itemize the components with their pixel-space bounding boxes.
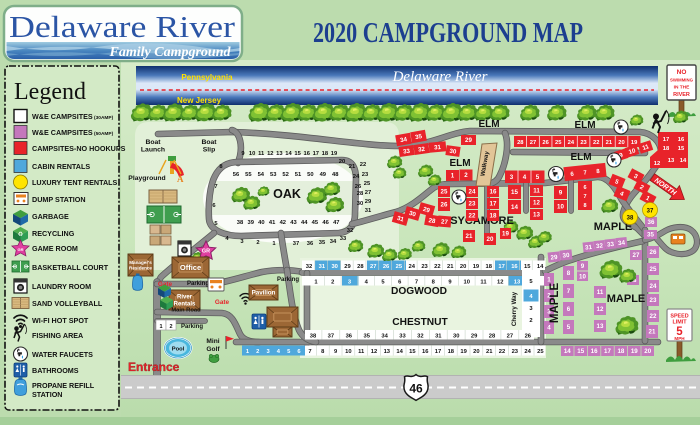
svg-text:17: 17 <box>604 348 611 355</box>
svg-text:CHESTNUT: CHESTNUT <box>392 317 448 328</box>
svg-text:SWIMMING: SWIMMING <box>670 78 694 83</box>
svg-text:New Jersey: New Jersey <box>177 96 222 105</box>
svg-text:22: 22 <box>499 349 505 355</box>
svg-text:26: 26 <box>441 202 448 209</box>
svg-text:56: 56 <box>233 172 240 178</box>
svg-text:CAMPSITES-NO HOOKUPS: CAMPSITES-NO HOOKUPS <box>32 144 126 153</box>
svg-text:17: 17 <box>498 264 504 270</box>
svg-text:21: 21 <box>649 329 656 336</box>
svg-text:45: 45 <box>312 220 319 226</box>
svg-text:SAND VOLLEYBALL: SAND VOLLEYBALL <box>32 299 103 308</box>
svg-text:31: 31 <box>319 264 326 270</box>
svg-text:35: 35 <box>647 232 654 239</box>
svg-text:33: 33 <box>340 236 347 242</box>
svg-text:4: 4 <box>523 174 527 181</box>
svg-text:19: 19 <box>331 151 338 157</box>
svg-text:STATION: STATION <box>32 390 62 399</box>
svg-text:25: 25 <box>441 189 448 196</box>
svg-text:29: 29 <box>471 334 478 340</box>
svg-text:27: 27 <box>370 264 376 270</box>
svg-text:18: 18 <box>490 213 497 220</box>
svg-text:24: 24 <box>469 189 476 196</box>
svg-text:33: 33 <box>607 241 615 249</box>
svg-text:14: 14 <box>396 349 403 355</box>
svg-text:34: 34 <box>618 239 626 247</box>
svg-text:30: 30 <box>331 264 337 270</box>
svg-text:Gate: Gate <box>215 299 230 306</box>
svg-text:15: 15 <box>678 146 685 152</box>
svg-text:41: 41 <box>269 220 276 226</box>
svg-text:27: 27 <box>441 218 449 226</box>
svg-text:12: 12 <box>533 200 540 207</box>
svg-text:BASKETBALL COURT: BASKETBALL COURT <box>32 263 109 272</box>
svg-text:46: 46 <box>409 382 423 396</box>
svg-text:32: 32 <box>347 228 353 234</box>
svg-text:18: 18 <box>322 151 329 157</box>
svg-text:NO: NO <box>677 69 687 76</box>
svg-text:52: 52 <box>282 172 288 178</box>
svg-text:22: 22 <box>650 313 657 320</box>
svg-text:8: 8 <box>583 203 586 209</box>
svg-text:16: 16 <box>490 189 497 196</box>
svg-text:20: 20 <box>487 236 494 243</box>
svg-text:Office: Office <box>180 263 201 272</box>
svg-text:LAUNDRY ROOM: LAUNDRY ROOM <box>32 282 91 291</box>
svg-text:23: 23 <box>421 264 428 270</box>
svg-text:Parking: Parking <box>181 324 203 330</box>
svg-text:30: 30 <box>453 334 459 340</box>
svg-text:IN THE: IN THE <box>674 85 691 91</box>
svg-text:GR: GR <box>202 249 210 255</box>
svg-text:21: 21 <box>447 264 454 270</box>
svg-text:34: 34 <box>330 239 337 245</box>
svg-text:15: 15 <box>524 264 531 270</box>
svg-text:Boat: Boat <box>145 139 161 146</box>
svg-text:38: 38 <box>237 220 244 226</box>
svg-text:23: 23 <box>469 201 476 208</box>
svg-text:44: 44 <box>301 220 308 226</box>
svg-text:32: 32 <box>596 242 604 250</box>
svg-text:22: 22 <box>469 213 476 220</box>
svg-text:5: 5 <box>536 174 540 181</box>
svg-text:18: 18 <box>617 348 624 355</box>
svg-text:9: 9 <box>559 190 563 197</box>
svg-text:25: 25 <box>650 266 657 273</box>
svg-text:53: 53 <box>270 172 277 178</box>
svg-text:13: 13 <box>533 212 540 219</box>
svg-text:14: 14 <box>537 264 544 270</box>
svg-text:18: 18 <box>448 349 455 355</box>
svg-text:9: 9 <box>581 263 585 270</box>
svg-text:27: 27 <box>365 190 371 196</box>
svg-text:15: 15 <box>511 189 518 196</box>
svg-text:26: 26 <box>525 334 532 340</box>
svg-text:39: 39 <box>247 220 254 226</box>
svg-text:20: 20 <box>644 348 651 355</box>
svg-text:43: 43 <box>290 220 297 226</box>
svg-text:32: 32 <box>306 264 312 270</box>
svg-text:20: 20 <box>473 349 479 355</box>
svg-text:17: 17 <box>663 137 669 143</box>
svg-text:36: 36 <box>648 219 655 226</box>
svg-text:♻: ♻ <box>18 231 23 238</box>
svg-text:LIMIT: LIMIT <box>672 320 687 326</box>
svg-text:10: 10 <box>464 280 470 286</box>
svg-text:25: 25 <box>537 349 544 355</box>
svg-text:20: 20 <box>618 140 624 146</box>
svg-text:11: 11 <box>597 289 604 296</box>
svg-text:ELM: ELM <box>478 119 499 130</box>
svg-text:15: 15 <box>409 349 416 355</box>
svg-text:2: 2 <box>169 324 172 330</box>
svg-text:2: 2 <box>256 240 259 246</box>
svg-text:13: 13 <box>384 349 391 355</box>
svg-text:27: 27 <box>507 334 513 340</box>
svg-text:7: 7 <box>214 184 217 190</box>
svg-text:36: 36 <box>307 241 314 247</box>
svg-text:23: 23 <box>512 349 519 355</box>
svg-text:Boat: Boat <box>201 139 217 146</box>
svg-text:Parking: Parking <box>187 281 209 287</box>
svg-text:Mini: Mini <box>206 338 219 345</box>
svg-text:DUMP STATION: DUMP STATION <box>32 195 86 204</box>
svg-text:ELM: ELM <box>570 152 591 163</box>
svg-text:26: 26 <box>383 264 390 270</box>
svg-text:CABIN RENTALS: CABIN RENTALS <box>32 162 90 171</box>
svg-text:SYCAMORE: SYCAMORE <box>450 215 514 227</box>
svg-text:31: 31 <box>435 334 442 340</box>
svg-text:Pavilion: Pavilion <box>252 290 276 297</box>
svg-text:ELM: ELM <box>449 158 470 169</box>
svg-text:FISHING AREA: FISHING AREA <box>32 331 83 340</box>
svg-text:27: 27 <box>633 252 640 259</box>
svg-text:16: 16 <box>678 137 685 143</box>
svg-text:BATHROOMS: BATHROOMS <box>32 366 79 375</box>
svg-text:31: 31 <box>434 144 442 152</box>
svg-text:10: 10 <box>579 273 586 280</box>
svg-text:Cherry Way: Cherry Way <box>511 291 518 326</box>
svg-text:29: 29 <box>344 264 351 270</box>
svg-text:47: 47 <box>333 220 339 226</box>
svg-text:17: 17 <box>435 349 441 355</box>
svg-text:Manager's: Manager's <box>129 260 152 265</box>
svg-text:28: 28 <box>357 264 364 270</box>
svg-text:4: 4 <box>547 325 551 332</box>
svg-text:27: 27 <box>530 140 536 146</box>
svg-text:17: 17 <box>490 201 497 208</box>
svg-text:1: 1 <box>547 277 551 284</box>
svg-text:PROPANE REFILL: PROPANE REFILL <box>32 381 95 390</box>
svg-text:24: 24 <box>650 283 657 290</box>
svg-text:GR: GR <box>18 247 24 252</box>
svg-text:7: 7 <box>567 288 571 295</box>
svg-text:54: 54 <box>258 172 265 178</box>
svg-text:Slip: Slip <box>203 147 215 154</box>
svg-text:22: 22 <box>360 162 366 168</box>
svg-text:RIVER: RIVER <box>673 92 690 98</box>
svg-text:Pennsylvania: Pennsylvania <box>181 73 233 82</box>
svg-text:Residence: Residence <box>129 265 152 270</box>
svg-text:37: 37 <box>647 209 654 215</box>
svg-text:MPH: MPH <box>674 336 685 341</box>
svg-text:31: 31 <box>585 244 593 252</box>
svg-text:21: 21 <box>466 233 473 240</box>
svg-text:38: 38 <box>627 216 634 222</box>
svg-text:17: 17 <box>313 151 319 157</box>
svg-text:DOGWOOD: DOGWOOD <box>391 286 447 297</box>
svg-text:24: 24 <box>408 264 415 270</box>
svg-text:Golf: Golf <box>206 346 220 353</box>
svg-text:18: 18 <box>486 264 493 270</box>
svg-text:37: 37 <box>293 241 299 247</box>
svg-text:28: 28 <box>489 334 496 340</box>
svg-text:42: 42 <box>280 220 286 226</box>
svg-text:6: 6 <box>567 306 571 313</box>
svg-text:ELM: ELM <box>574 120 595 131</box>
svg-text:Legend: Legend <box>14 79 86 105</box>
svg-text:8: 8 <box>567 270 571 277</box>
svg-text:25: 25 <box>364 181 371 187</box>
svg-text:Playground: Playground <box>128 175 165 182</box>
svg-text:21: 21 <box>349 164 356 170</box>
svg-text:18: 18 <box>663 146 670 152</box>
svg-text:22: 22 <box>593 140 599 146</box>
svg-text:Delaware River: Delaware River <box>392 69 488 85</box>
svg-text:12: 12 <box>371 349 377 355</box>
svg-text:LUXURY TENT RENTALS: LUXURY TENT RENTALS <box>32 178 118 187</box>
svg-text:WATER FAUCETS: WATER FAUCETS <box>32 350 93 359</box>
svg-text:OAK: OAK <box>273 187 301 201</box>
svg-text:20: 20 <box>460 264 466 270</box>
svg-text:19: 19 <box>460 349 467 355</box>
svg-text:28: 28 <box>357 191 364 197</box>
svg-text:19: 19 <box>631 348 638 355</box>
svg-text:14: 14 <box>680 158 687 164</box>
svg-text:29: 29 <box>365 199 372 205</box>
svg-text:19: 19 <box>502 231 509 238</box>
svg-text:7: 7 <box>583 194 586 200</box>
svg-text:24: 24 <box>524 349 531 355</box>
svg-text:1: 1 <box>159 324 162 330</box>
svg-text:31: 31 <box>365 208 372 214</box>
svg-text:1: 1 <box>451 173 455 180</box>
svg-text:34: 34 <box>381 334 388 340</box>
svg-text:7: 7 <box>308 349 311 355</box>
svg-text:MAPLE: MAPLE <box>549 283 561 324</box>
svg-text:15: 15 <box>577 348 584 355</box>
svg-text:Pool: Pool <box>172 347 185 353</box>
svg-text:26: 26 <box>542 140 549 146</box>
svg-text:A: A <box>177 174 184 184</box>
svg-text:16: 16 <box>303 151 310 157</box>
svg-text:2: 2 <box>331 280 334 286</box>
svg-text:25: 25 <box>396 264 403 270</box>
svg-text:10: 10 <box>345 349 351 355</box>
svg-text:3: 3 <box>510 174 514 181</box>
svg-text:24: 24 <box>568 140 575 146</box>
svg-text:24: 24 <box>353 174 360 180</box>
svg-text:14: 14 <box>285 151 292 157</box>
svg-text:12: 12 <box>267 151 273 157</box>
svg-text:Launch: Launch <box>141 147 165 154</box>
svg-text:12: 12 <box>597 306 604 313</box>
svg-text:WI-FI HOT SPOT: WI-FI HOT SPOT <box>32 316 89 325</box>
svg-text:13: 13 <box>668 158 675 164</box>
svg-text:26: 26 <box>650 249 657 256</box>
svg-text:30: 30 <box>562 252 570 260</box>
svg-text:Parking: Parking <box>277 277 299 283</box>
svg-text:28: 28 <box>517 140 524 146</box>
svg-text:37: 37 <box>328 334 334 340</box>
svg-text:25: 25 <box>555 140 562 146</box>
svg-text:Main Road: Main Road <box>171 308 201 314</box>
svg-text:36: 36 <box>346 334 353 340</box>
svg-text:46: 46 <box>322 220 329 226</box>
svg-text:15: 15 <box>294 151 301 157</box>
svg-text:MAPLE: MAPLE <box>607 293 646 305</box>
svg-text:13: 13 <box>276 151 283 157</box>
svg-text:33: 33 <box>399 334 406 340</box>
svg-text:6: 6 <box>583 185 586 191</box>
svg-text:21: 21 <box>606 140 613 146</box>
svg-text:19: 19 <box>473 264 480 270</box>
svg-text:7: 7 <box>415 280 418 286</box>
svg-text:13: 13 <box>514 280 521 286</box>
svg-text:10: 10 <box>249 151 255 157</box>
svg-text:40: 40 <box>258 220 264 226</box>
svg-text:GAME ROOM: GAME ROOM <box>32 244 78 253</box>
svg-text:2: 2 <box>464 172 468 179</box>
svg-text:32: 32 <box>417 334 423 340</box>
svg-text:23: 23 <box>580 140 587 146</box>
svg-text:29: 29 <box>465 137 472 144</box>
svg-text:26: 26 <box>355 184 362 190</box>
svg-text:11: 11 <box>480 280 487 286</box>
svg-text:2: 2 <box>529 318 532 324</box>
svg-text:2020 CAMPGROUND MAP: 2020 CAMPGROUND MAP <box>313 18 583 49</box>
svg-text:21: 21 <box>486 349 493 355</box>
svg-text:35: 35 <box>363 334 370 340</box>
svg-text:10: 10 <box>557 204 564 211</box>
svg-text:55: 55 <box>245 172 252 178</box>
svg-text:16: 16 <box>591 348 598 355</box>
svg-text:35: 35 <box>319 240 326 246</box>
svg-text:23: 23 <box>362 172 369 178</box>
svg-text:13: 13 <box>597 323 604 330</box>
svg-text:30: 30 <box>357 201 363 207</box>
svg-text:51: 51 <box>295 172 302 178</box>
svg-text:20: 20 <box>339 159 345 165</box>
svg-text:16: 16 <box>422 349 429 355</box>
svg-text:23: 23 <box>650 297 657 304</box>
svg-text:12: 12 <box>654 161 660 167</box>
svg-text:22: 22 <box>434 264 440 270</box>
svg-text:12: 12 <box>497 280 503 286</box>
svg-text:49: 49 <box>320 172 327 178</box>
svg-text:GARBAGE: GARBAGE <box>32 212 69 221</box>
svg-text:29: 29 <box>550 254 558 262</box>
svg-text:River: River <box>177 295 193 301</box>
svg-text:38: 38 <box>310 334 317 340</box>
svg-text:Delaware River: Delaware River <box>9 9 236 44</box>
svg-text:16: 16 <box>511 264 518 270</box>
svg-text:14: 14 <box>564 348 571 355</box>
svg-text:5: 5 <box>567 324 571 331</box>
svg-text:48: 48 <box>332 172 339 178</box>
svg-text:50: 50 <box>307 172 313 178</box>
svg-text:11: 11 <box>258 151 265 157</box>
svg-text:RECYCLING: RECYCLING <box>32 229 75 238</box>
svg-text:11: 11 <box>533 188 540 195</box>
svg-text:Family Campground: Family Campground <box>109 45 232 60</box>
svg-text:2: 2 <box>256 349 259 355</box>
svg-text:14: 14 <box>511 204 518 211</box>
svg-text:Entrance: Entrance <box>128 360 180 374</box>
svg-text:11: 11 <box>358 349 365 355</box>
